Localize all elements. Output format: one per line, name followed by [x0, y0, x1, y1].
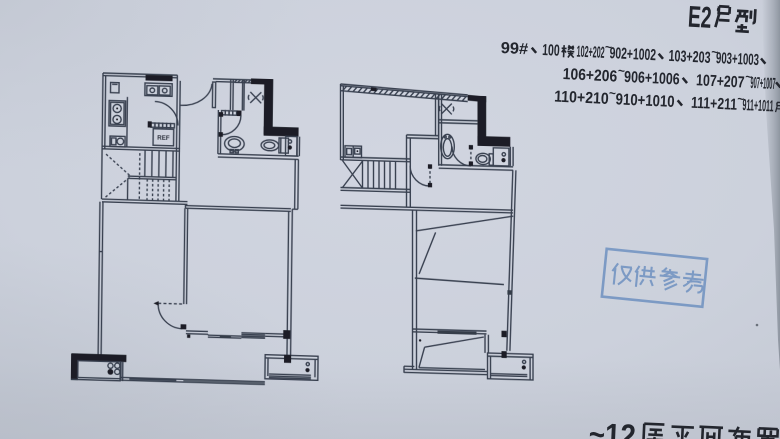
svg-text:99#: 99# [500, 40, 528, 58]
svg-text:E2: E2 [687, 1, 712, 35]
svg-text:106+206: 106+206 [562, 66, 617, 86]
svg-text:103+203: 103+203 [668, 48, 711, 67]
svg-text:902+1002: 902+1002 [609, 45, 656, 64]
svg-text:~12: ~12 [588, 416, 637, 439]
svg-text:910+1010: 910+1010 [615, 91, 675, 111]
svg-text:102+202: 102+202 [576, 44, 605, 62]
svg-text:100: 100 [542, 42, 560, 60]
svg-text:907+1007: 907+1007 [750, 75, 776, 93]
svg-text:906+1006: 906+1006 [624, 69, 680, 89]
svg-text:911+1011: 911+1011 [742, 97, 774, 115]
svg-text:111+211: 111+211 [691, 95, 738, 114]
svg-text:107+207: 107+207 [696, 72, 745, 91]
svg-text:REF: REF [157, 135, 170, 142]
svg-text:110+210: 110+210 [554, 89, 609, 108]
svg-text:903+1003: 903+1003 [716, 50, 760, 69]
